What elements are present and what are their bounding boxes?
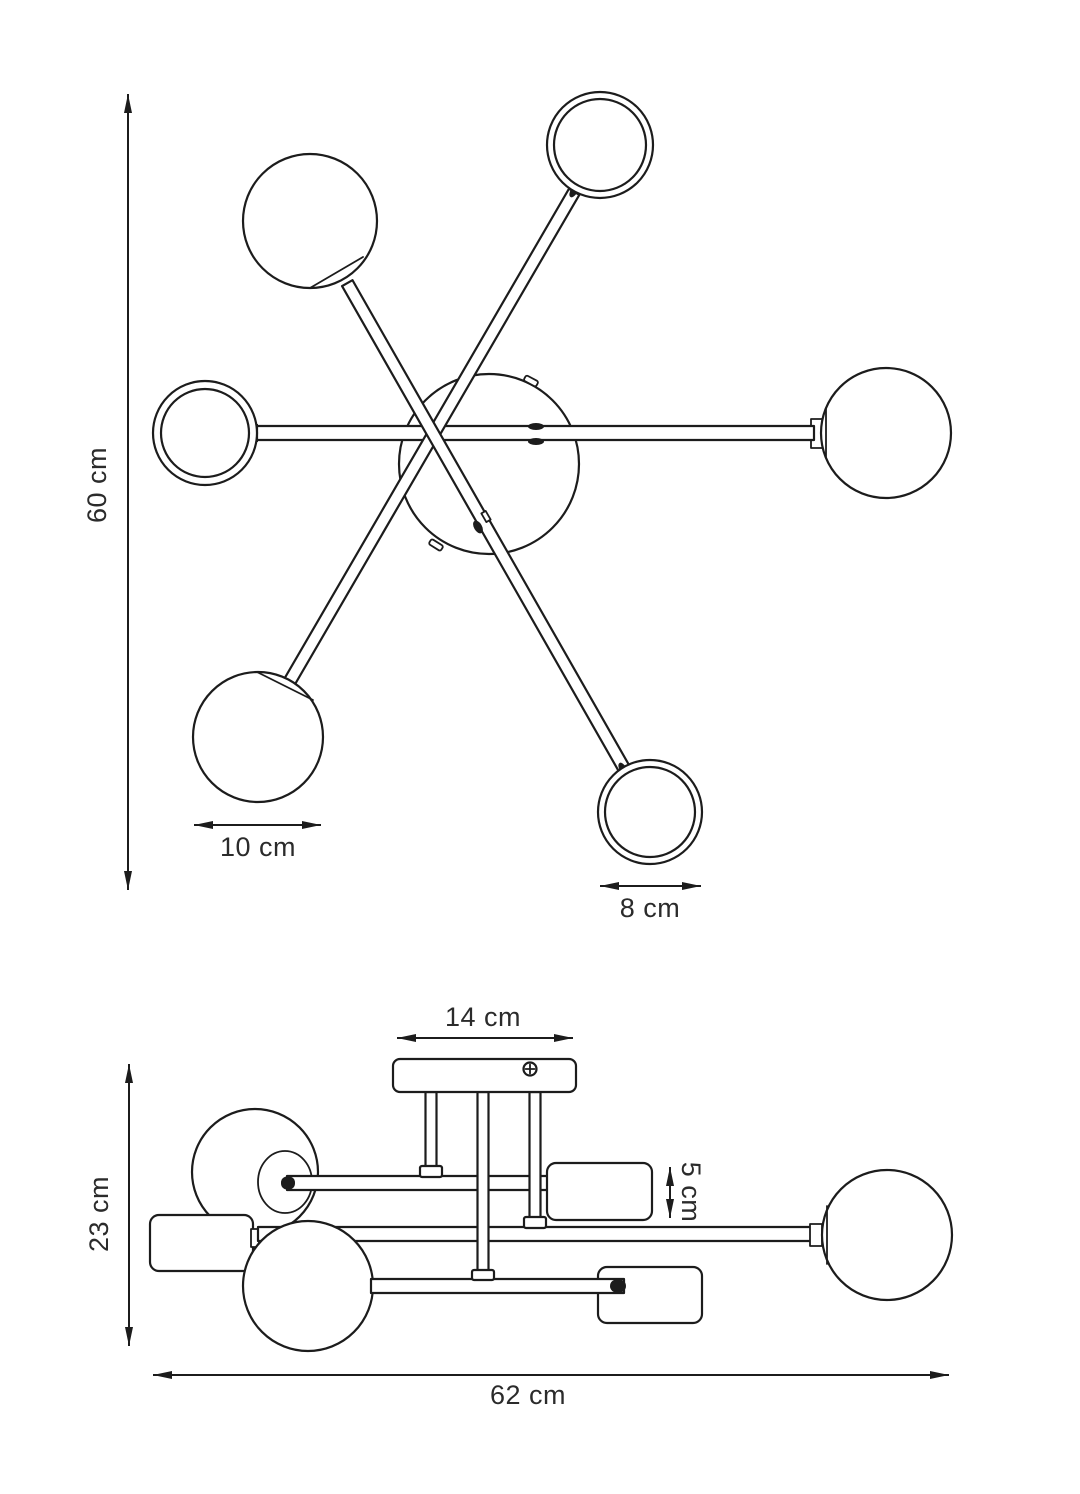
- glass-sphere-bottom-left: [193, 672, 323, 802]
- suspension-rod: [478, 1092, 489, 1272]
- dimension-top-height: 60 cm: [82, 94, 128, 890]
- glass-ring-left: [153, 381, 257, 485]
- dimension-shade-height: 5 cm: [670, 1162, 706, 1223]
- dimension-canopy-width: 14 cm: [397, 1002, 573, 1038]
- cylinder-shade-lower: [598, 1267, 702, 1323]
- dimension-label-14cm: 14 cm: [445, 1002, 521, 1032]
- side-view: 14 cm 5 cm 23 cm 62 cm: [84, 1002, 952, 1410]
- canopy-side-view: [393, 1059, 576, 1092]
- glass-sphere-front: [243, 1221, 373, 1351]
- technical-drawing-page: 60 cm 10 cm 8 cm: [0, 0, 1080, 1494]
- lamp-technical-drawing: 60 cm 10 cm 8 cm: [0, 0, 1080, 1494]
- suspension-rod: [426, 1092, 437, 1168]
- rod-clip: [528, 438, 544, 445]
- top-view: 60 cm 10 cm 8 cm: [82, 92, 951, 923]
- rod-collar: [472, 1270, 494, 1280]
- rod-clip: [528, 423, 544, 430]
- dimension-sphere-diameter: 10 cm: [194, 825, 321, 862]
- dimension-label-62cm: 62 cm: [490, 1380, 566, 1410]
- dimension-label-5cm: 5 cm: [676, 1162, 706, 1223]
- cylinder-shade-left: [150, 1215, 253, 1271]
- dimension-total-width: 62 cm: [153, 1375, 949, 1410]
- cylinder-shade-upper: [547, 1163, 652, 1220]
- dimension-label-23cm: 23 cm: [84, 1176, 114, 1252]
- lamp-arm-upper: [287, 1176, 548, 1190]
- glass-ring-bottom-right: [598, 760, 702, 864]
- glass-sphere-top-left: [243, 154, 377, 288]
- glass-ring-top-right: [547, 92, 653, 198]
- lamp-arm-lower: [371, 1279, 624, 1293]
- rod-collar: [524, 1217, 546, 1228]
- dimension-ring-diameter: 8 cm: [600, 886, 701, 923]
- arm-end-cap: [281, 1177, 295, 1190]
- dimension-label-8cm: 8 cm: [620, 893, 681, 923]
- dimension-label-60cm: 60 cm: [82, 447, 112, 523]
- rod-collar: [420, 1166, 442, 1177]
- glass-sphere-right: [821, 368, 951, 498]
- dimension-label-10cm: 10 cm: [220, 832, 296, 862]
- dimension-side-height: 23 cm: [84, 1064, 129, 1346]
- suspension-rod: [530, 1092, 541, 1219]
- glass-sphere-right-side: [810, 1170, 952, 1300]
- arm-end-cap: [610, 1280, 626, 1293]
